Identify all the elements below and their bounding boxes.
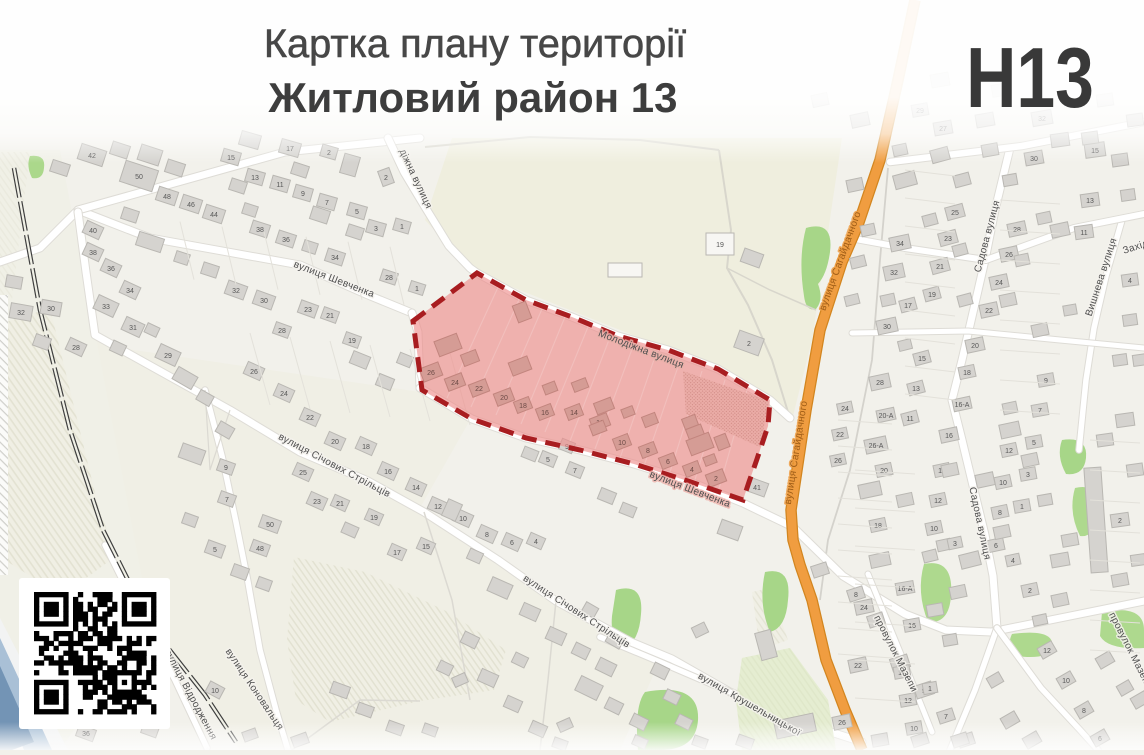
svg-text:24: 24 (451, 380, 459, 387)
svg-text:29: 29 (164, 353, 172, 360)
svg-text:46: 46 (187, 202, 195, 209)
svg-text:20: 20 (971, 343, 979, 350)
svg-text:28: 28 (876, 380, 884, 387)
svg-text:16: 16 (541, 410, 549, 417)
svg-text:2: 2 (384, 175, 388, 182)
svg-text:23: 23 (944, 236, 952, 243)
svg-text:14: 14 (412, 485, 420, 492)
svg-text:12: 12 (434, 504, 442, 511)
svg-text:15: 15 (918, 356, 926, 363)
svg-text:48: 48 (256, 546, 264, 553)
svg-text:24: 24 (995, 280, 1003, 287)
svg-text:7: 7 (325, 200, 329, 207)
svg-text:1: 1 (415, 286, 419, 293)
svg-text:10: 10 (930, 526, 938, 533)
svg-text:12: 12 (1005, 448, 1013, 455)
svg-text:28: 28 (72, 345, 80, 352)
svg-text:11: 11 (276, 182, 283, 189)
svg-text:23: 23 (313, 499, 321, 506)
svg-text:25: 25 (951, 210, 959, 217)
svg-text:34: 34 (331, 255, 339, 262)
svg-text:11: 11 (1080, 230, 1087, 237)
svg-text:Н13: Н13 (966, 32, 1094, 126)
svg-text:22: 22 (836, 432, 844, 439)
svg-text:13: 13 (912, 386, 920, 393)
svg-text:2: 2 (1118, 518, 1122, 525)
svg-text:30: 30 (47, 306, 55, 313)
svg-text:4: 4 (690, 467, 694, 474)
svg-text:Житловий район 13: Житловий район 13 (268, 74, 678, 121)
svg-text:22: 22 (985, 308, 993, 315)
svg-text:30: 30 (260, 298, 268, 305)
svg-text:50: 50 (266, 522, 274, 529)
svg-text:24: 24 (860, 605, 868, 612)
svg-text:18: 18 (963, 370, 971, 377)
svg-text:28: 28 (385, 275, 393, 282)
svg-text:13: 13 (1086, 198, 1094, 205)
svg-text:22: 22 (854, 663, 862, 670)
svg-text:8: 8 (998, 510, 1002, 517)
svg-text:5: 5 (546, 457, 550, 464)
svg-text:36: 36 (107, 266, 115, 273)
svg-text:34: 34 (896, 241, 904, 248)
svg-text:5: 5 (213, 547, 217, 554)
svg-text:26: 26 (250, 369, 258, 376)
svg-text:6: 6 (994, 543, 998, 550)
svg-text:36: 36 (282, 237, 290, 244)
svg-text:3: 3 (1026, 472, 1030, 479)
svg-text:20-А: 20-А (879, 413, 894, 420)
svg-text:4: 4 (1128, 278, 1132, 285)
svg-text:18: 18 (362, 444, 370, 451)
svg-text:26: 26 (834, 458, 842, 465)
svg-text:41: 41 (753, 485, 761, 492)
svg-text:32: 32 (890, 270, 898, 277)
svg-text:1: 1 (928, 686, 932, 693)
svg-text:22: 22 (306, 415, 314, 422)
svg-text:18: 18 (519, 403, 527, 410)
svg-text:20: 20 (500, 395, 508, 402)
svg-text:19: 19 (370, 515, 378, 522)
svg-text:8: 8 (854, 592, 858, 599)
svg-text:10: 10 (999, 480, 1007, 487)
svg-text:25: 25 (299, 470, 307, 477)
svg-text:Картка плану території: Картка плану території (264, 22, 686, 66)
svg-text:32: 32 (17, 310, 25, 317)
svg-text:32: 32 (232, 288, 240, 295)
svg-text:24: 24 (841, 406, 849, 413)
svg-text:21: 21 (936, 264, 944, 271)
svg-text:7: 7 (573, 468, 577, 475)
svg-text:9: 9 (224, 465, 228, 472)
svg-text:10: 10 (1062, 678, 1070, 685)
svg-text:31: 31 (129, 325, 137, 332)
svg-text:5: 5 (1032, 440, 1036, 447)
svg-text:16: 16 (384, 469, 392, 476)
svg-text:10: 10 (211, 688, 219, 695)
svg-text:5: 5 (355, 209, 359, 216)
svg-text:6: 6 (666, 459, 670, 466)
svg-text:16-А: 16-А (955, 402, 970, 409)
svg-text:15: 15 (422, 544, 430, 551)
svg-text:40: 40 (89, 228, 97, 235)
svg-text:20: 20 (331, 439, 339, 446)
svg-text:23: 23 (304, 307, 312, 314)
svg-text:10: 10 (618, 440, 626, 447)
svg-text:2: 2 (714, 476, 718, 483)
svg-text:28: 28 (1013, 227, 1021, 234)
svg-text:26: 26 (1005, 252, 1013, 259)
svg-text:7: 7 (225, 497, 229, 504)
svg-text:1: 1 (1020, 504, 1024, 511)
svg-text:48: 48 (163, 194, 171, 201)
svg-text:38: 38 (256, 227, 264, 234)
svg-text:14: 14 (570, 410, 578, 417)
svg-text:28: 28 (278, 328, 286, 335)
svg-text:2: 2 (1028, 588, 1032, 595)
svg-text:44: 44 (210, 212, 218, 219)
svg-text:12: 12 (1043, 648, 1051, 655)
svg-text:7: 7 (1038, 408, 1042, 415)
svg-text:4: 4 (534, 539, 538, 546)
svg-text:21: 21 (336, 501, 344, 508)
svg-text:1: 1 (400, 224, 404, 231)
svg-text:26: 26 (427, 370, 435, 377)
svg-text:24: 24 (280, 391, 288, 398)
svg-text:17: 17 (393, 550, 401, 557)
svg-text:4: 4 (1011, 558, 1015, 565)
svg-text:22: 22 (475, 386, 483, 393)
svg-text:17: 17 (904, 303, 912, 310)
svg-text:50: 50 (135, 174, 143, 181)
svg-text:34: 34 (126, 288, 134, 295)
svg-text:21: 21 (326, 313, 334, 320)
svg-text:2: 2 (747, 341, 751, 348)
svg-text:12: 12 (934, 498, 942, 505)
svg-text:8: 8 (485, 532, 489, 539)
svg-text:7: 7 (944, 714, 948, 721)
svg-text:6: 6 (510, 540, 514, 547)
svg-text:8: 8 (1082, 708, 1086, 715)
svg-text:9: 9 (1044, 378, 1048, 385)
svg-text:8: 8 (646, 448, 650, 455)
svg-text:30: 30 (883, 324, 891, 331)
svg-text:9: 9 (301, 191, 305, 198)
svg-text:33: 33 (102, 304, 110, 311)
svg-text:19: 19 (348, 338, 356, 345)
svg-text:38: 38 (89, 250, 97, 257)
svg-text:3: 3 (953, 541, 957, 548)
svg-text:19: 19 (928, 292, 936, 299)
svg-text:16: 16 (945, 433, 953, 440)
svg-text:13: 13 (251, 175, 259, 182)
svg-text:3: 3 (374, 226, 378, 233)
svg-text:11: 11 (906, 416, 913, 423)
svg-text:19: 19 (716, 242, 724, 249)
svg-text:10: 10 (459, 516, 467, 523)
